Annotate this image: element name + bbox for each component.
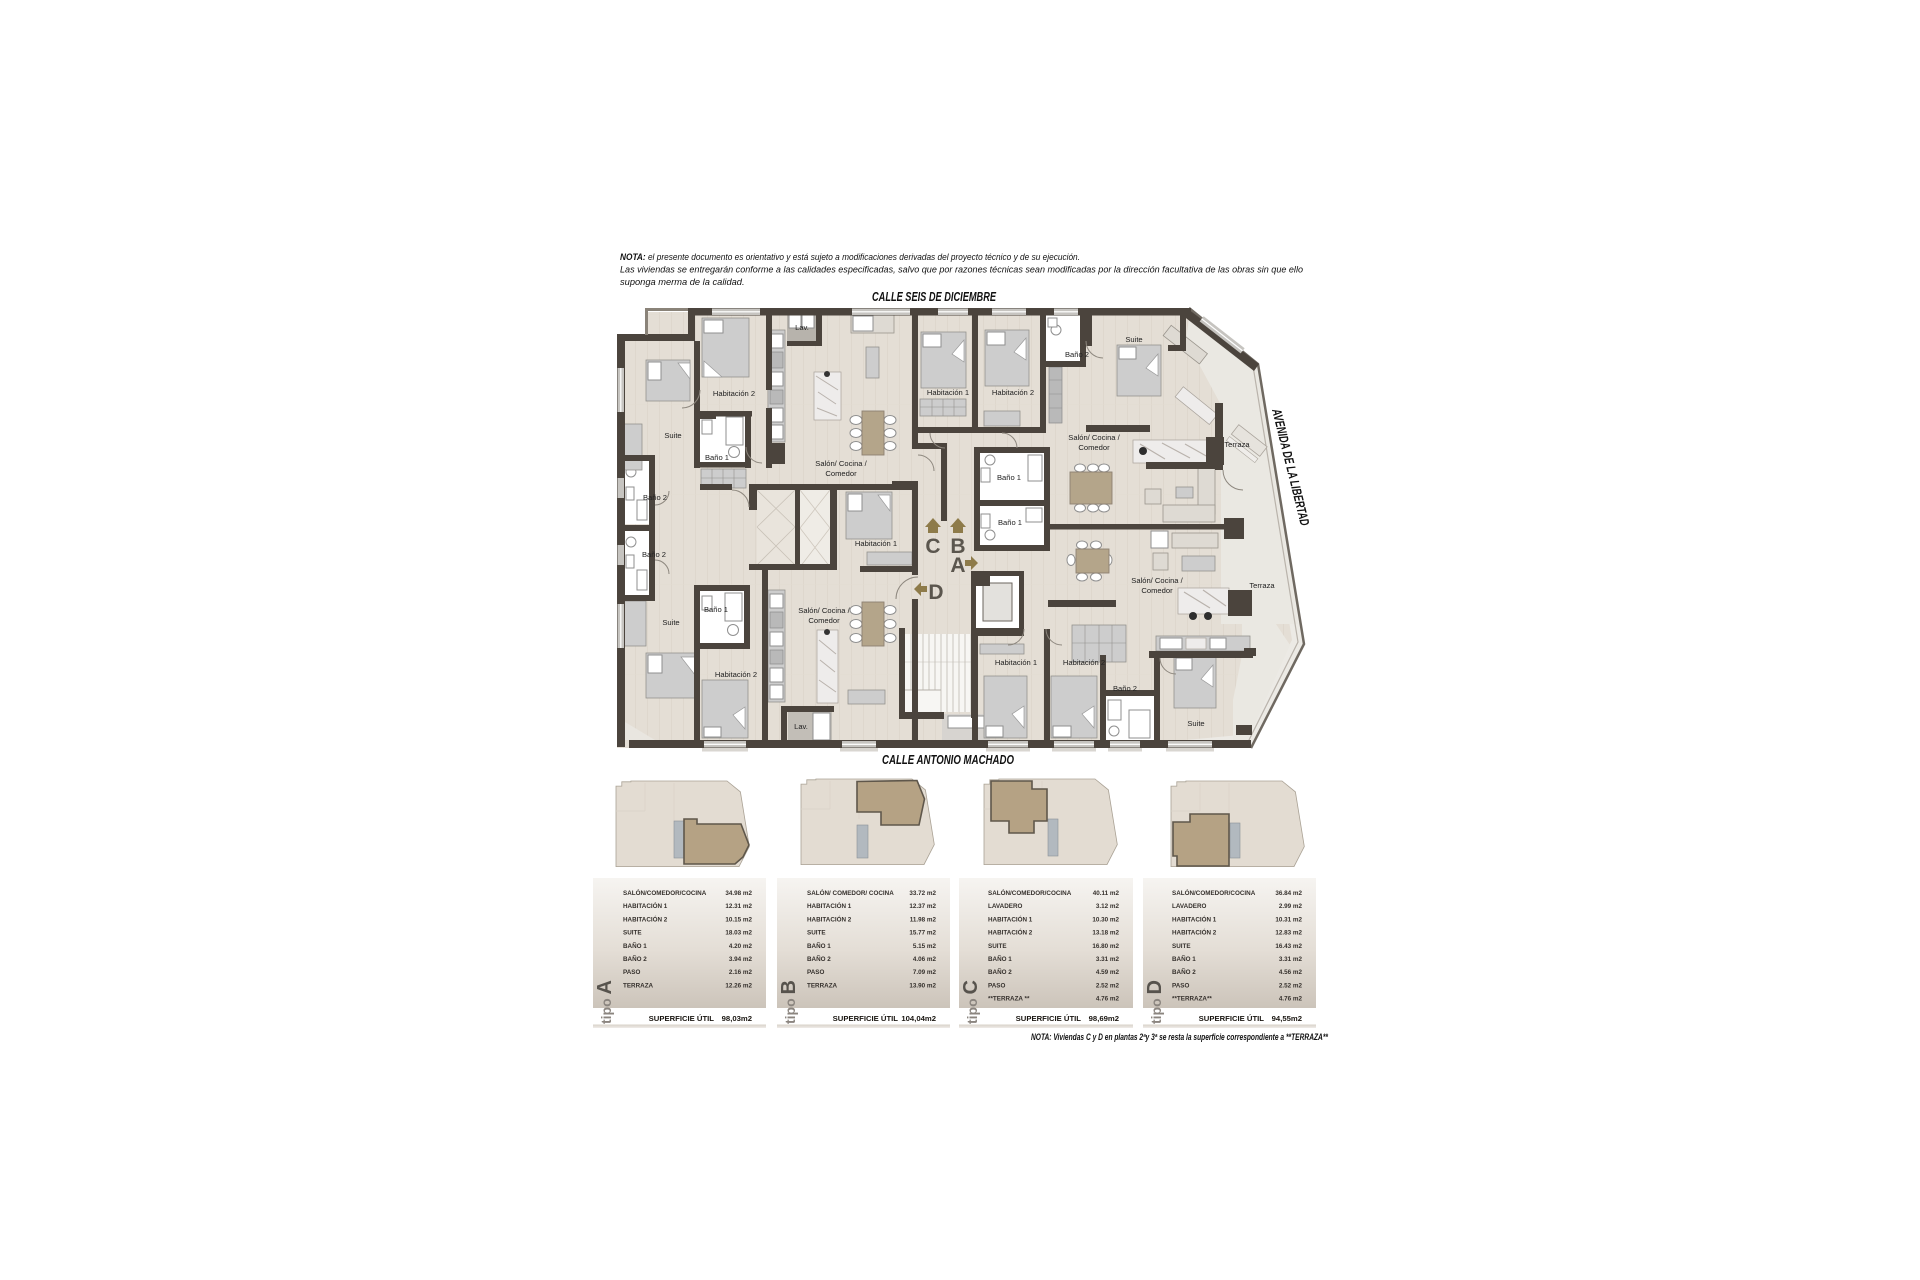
- svg-text:SUITE: SUITE: [1172, 943, 1191, 950]
- svg-text:12.26 m2: 12.26 m2: [725, 982, 752, 989]
- svg-text:Baño 1: Baño 1: [705, 453, 729, 462]
- svg-text:5.15 m2: 5.15 m2: [913, 943, 937, 950]
- svg-text:SALÓN/ COMEDOR/ COCINA: SALÓN/ COMEDOR/ COCINA: [807, 888, 894, 897]
- svg-text:Salón/ Cocina /: Salón/ Cocina /: [798, 606, 850, 615]
- svg-text:CALLE SEIS DE DICIEMBRE: CALLE SEIS DE DICIEMBRE: [872, 289, 996, 304]
- svg-text:SUPERFICIE ÚTIL: SUPERFICIE ÚTIL: [649, 1014, 715, 1023]
- svg-text:Habitación 1: Habitación 1: [995, 658, 1037, 667]
- svg-text:Baño 2: Baño 2: [1065, 350, 1089, 359]
- svg-text:TERRAZA: TERRAZA: [623, 982, 654, 989]
- svg-text:Suite: Suite: [1187, 719, 1204, 728]
- svg-text:BAÑO 2: BAÑO 2: [807, 954, 831, 963]
- svg-text:BAÑO 1: BAÑO 1: [623, 941, 647, 950]
- svg-text:HABITACIÓN 1: HABITACIÓN 1: [807, 901, 852, 910]
- svg-text:Salón/ Cocina /: Salón/ Cocina /: [1131, 576, 1183, 585]
- svg-text:7.09 m2: 7.09 m2: [913, 969, 937, 976]
- svg-text:Habitación 2: Habitación 2: [715, 670, 757, 679]
- svg-text:3.94 m2: 3.94 m2: [729, 956, 753, 963]
- svg-text:94,55m2: 94,55m2: [1272, 1014, 1302, 1023]
- svg-text:12.83 m2: 12.83 m2: [1275, 930, 1302, 937]
- svg-text:SUPERFICIE ÚTIL: SUPERFICIE ÚTIL: [1199, 1014, 1265, 1023]
- svg-text:BAÑO 2: BAÑO 2: [1172, 967, 1196, 976]
- svg-text:CALLE ANTONIO MACHADO: CALLE ANTONIO MACHADO: [882, 752, 1014, 767]
- svg-text:Baño 2: Baño 2: [1113, 684, 1137, 693]
- svg-text:18.03 m2: 18.03 m2: [725, 930, 752, 937]
- svg-text:104,04m2: 104,04m2: [901, 1014, 936, 1023]
- svg-text:D: D: [928, 581, 943, 604]
- svg-text:2.52 m2: 2.52 m2: [1279, 982, 1303, 989]
- svg-text:16.43 m2: 16.43 m2: [1275, 943, 1302, 950]
- svg-text:LAVADERO: LAVADERO: [1172, 903, 1207, 910]
- svg-text:98,69m2: 98,69m2: [1089, 1014, 1119, 1023]
- svg-text:3.12 m2: 3.12 m2: [1096, 903, 1120, 910]
- svg-text:PASO: PASO: [807, 969, 824, 976]
- svg-text:Baño 1: Baño 1: [704, 605, 728, 614]
- svg-text:tipo C: tipo C: [960, 980, 982, 1024]
- svg-text:15.77 m2: 15.77 m2: [909, 930, 936, 937]
- svg-text:2.16 m2: 2.16 m2: [729, 969, 753, 976]
- svg-text:13.18 m2: 13.18 m2: [1092, 930, 1119, 937]
- svg-text:3.31 m2: 3.31 m2: [1096, 956, 1120, 963]
- svg-text:Lav.: Lav.: [794, 722, 808, 731]
- svg-text:33.72 m2: 33.72 m2: [909, 890, 936, 897]
- svg-text:Habitación 2: Habitación 2: [713, 389, 755, 398]
- svg-text:HABITACIÓN 1: HABITACIÓN 1: [1172, 914, 1217, 923]
- svg-text:SUPERFICIE ÚTIL: SUPERFICIE ÚTIL: [833, 1014, 899, 1023]
- svg-text:12.31 m2: 12.31 m2: [725, 903, 752, 910]
- svg-text:10.30 m2: 10.30 m2: [1092, 916, 1119, 923]
- svg-text:SALÓN/COMEDOR/COCINA: SALÓN/COMEDOR/COCINA: [1172, 888, 1256, 897]
- svg-text:tipo B: tipo B: [778, 980, 800, 1024]
- svg-text:C: C: [925, 535, 940, 558]
- svg-text:PASO: PASO: [988, 982, 1005, 989]
- svg-text:Baño 1: Baño 1: [997, 473, 1021, 482]
- svg-text:NOTA: el presente documento e: NOTA: el presente documento es orientati…: [620, 252, 1080, 262]
- svg-text:HABITACIÓN 2: HABITACIÓN 2: [623, 914, 668, 923]
- svg-text:4.76 m2: 4.76 m2: [1279, 996, 1303, 1003]
- svg-text:PASO: PASO: [623, 969, 640, 976]
- svg-text:LAVADERO: LAVADERO: [988, 903, 1023, 910]
- svg-text:A: A: [950, 554, 965, 577]
- svg-text:SALÓN/COMEDOR/COCINA: SALÓN/COMEDOR/COCINA: [623, 888, 707, 897]
- svg-text:SALÓN/COMEDOR/COCINA: SALÓN/COMEDOR/COCINA: [988, 888, 1072, 897]
- svg-text:BAÑO 1: BAÑO 1: [1172, 954, 1196, 963]
- svg-text:Suite: Suite: [662, 618, 679, 627]
- svg-text:Salón/ Cocina /: Salón/ Cocina /: [815, 459, 867, 468]
- svg-text:NOTA: Viviendas C y D en plant: NOTA: Viviendas C y D en plantas 2ªy 3ª …: [1031, 1032, 1328, 1042]
- svg-text:SUPERFICIE ÚTIL: SUPERFICIE ÚTIL: [1016, 1014, 1082, 1023]
- svg-text:10.31 m2: 10.31 m2: [1275, 916, 1302, 923]
- svg-text:Baño 1: Baño 1: [998, 518, 1022, 527]
- svg-text:Las viviendas se entregarán co: Las viviendas se entregarán conforme a l…: [620, 265, 1303, 275]
- svg-text:4.59 m2: 4.59 m2: [1096, 969, 1120, 976]
- svg-text:36.84 m2: 36.84 m2: [1275, 890, 1302, 897]
- svg-text:Habitación 2: Habitación 2: [1063, 658, 1105, 667]
- svg-text:Comedor: Comedor: [825, 469, 857, 478]
- svg-text:HABITACIÓN 2: HABITACIÓN 2: [988, 928, 1033, 937]
- svg-text:suponga merma de la calidad.: suponga merma de la calidad.: [620, 277, 745, 287]
- svg-text:98,03m2: 98,03m2: [722, 1014, 752, 1023]
- svg-text:Comedor: Comedor: [808, 616, 840, 625]
- svg-text:3.31 m2: 3.31 m2: [1279, 956, 1303, 963]
- svg-text:4.56 m2: 4.56 m2: [1279, 969, 1303, 976]
- svg-text:tipo A: tipo A: [594, 980, 616, 1024]
- svg-text:13.90 m2: 13.90 m2: [909, 982, 936, 989]
- svg-text:Lav.: Lav.: [795, 323, 809, 332]
- svg-text:Baño 2: Baño 2: [642, 550, 666, 559]
- svg-text:40.11 m2: 40.11 m2: [1093, 890, 1120, 897]
- svg-text:SUITE: SUITE: [623, 930, 642, 937]
- svg-text:HABITACIÓN 1: HABITACIÓN 1: [988, 914, 1033, 923]
- svg-text:TERRAZA: TERRAZA: [807, 982, 838, 989]
- svg-text:4.06 m2: 4.06 m2: [913, 956, 937, 963]
- svg-text:Terraza: Terraza: [1249, 581, 1275, 590]
- svg-text:BAÑO 2: BAÑO 2: [623, 954, 647, 963]
- svg-text:tipo D: tipo D: [1144, 980, 1166, 1024]
- svg-text:Habitación 1: Habitación 1: [855, 539, 897, 548]
- svg-text:HABITACIÓN 2: HABITACIÓN 2: [807, 914, 852, 923]
- svg-text:SUITE: SUITE: [988, 943, 1007, 950]
- svg-text:**TERRAZA **: **TERRAZA **: [988, 996, 1030, 1003]
- svg-text:Habitación 1: Habitación 1: [927, 388, 969, 397]
- svg-text:11.98 m2: 11.98 m2: [910, 916, 937, 923]
- svg-text:34.98 m2: 34.98 m2: [725, 890, 752, 897]
- svg-text:Comedor: Comedor: [1078, 443, 1110, 452]
- svg-text:Suite: Suite: [664, 431, 681, 440]
- svg-text:Comedor: Comedor: [1141, 586, 1173, 595]
- svg-text:4.20 m2: 4.20 m2: [729, 943, 753, 950]
- svg-text:Suite: Suite: [1125, 335, 1142, 344]
- svg-text:Habitación 2: Habitación 2: [992, 388, 1034, 397]
- svg-text:12.37 m2: 12.37 m2: [909, 903, 936, 910]
- svg-text:**TERRAZA**: **TERRAZA**: [1172, 996, 1212, 1003]
- svg-text:Baño 2: Baño 2: [643, 493, 667, 502]
- svg-text:2.52 m2: 2.52 m2: [1096, 982, 1120, 989]
- svg-text:10.15 m2: 10.15 m2: [725, 916, 752, 923]
- svg-text:BAÑO 2: BAÑO 2: [988, 967, 1012, 976]
- svg-text:2.99 m2: 2.99 m2: [1279, 903, 1303, 910]
- svg-text:HABITACIÓN 1: HABITACIÓN 1: [623, 901, 668, 910]
- svg-text:SUITE: SUITE: [807, 930, 826, 937]
- svg-text:Terraza: Terraza: [1224, 440, 1250, 449]
- svg-text:HABITACIÓN 2: HABITACIÓN 2: [1172, 928, 1217, 937]
- svg-text:Salón/ Cocina /: Salón/ Cocina /: [1068, 433, 1120, 442]
- svg-text:BAÑO 1: BAÑO 1: [807, 941, 831, 950]
- svg-text:PASO: PASO: [1172, 982, 1189, 989]
- svg-text:16.80 m2: 16.80 m2: [1092, 943, 1119, 950]
- svg-text:4.76 m2: 4.76 m2: [1096, 996, 1120, 1003]
- svg-text:BAÑO 1: BAÑO 1: [988, 954, 1012, 963]
